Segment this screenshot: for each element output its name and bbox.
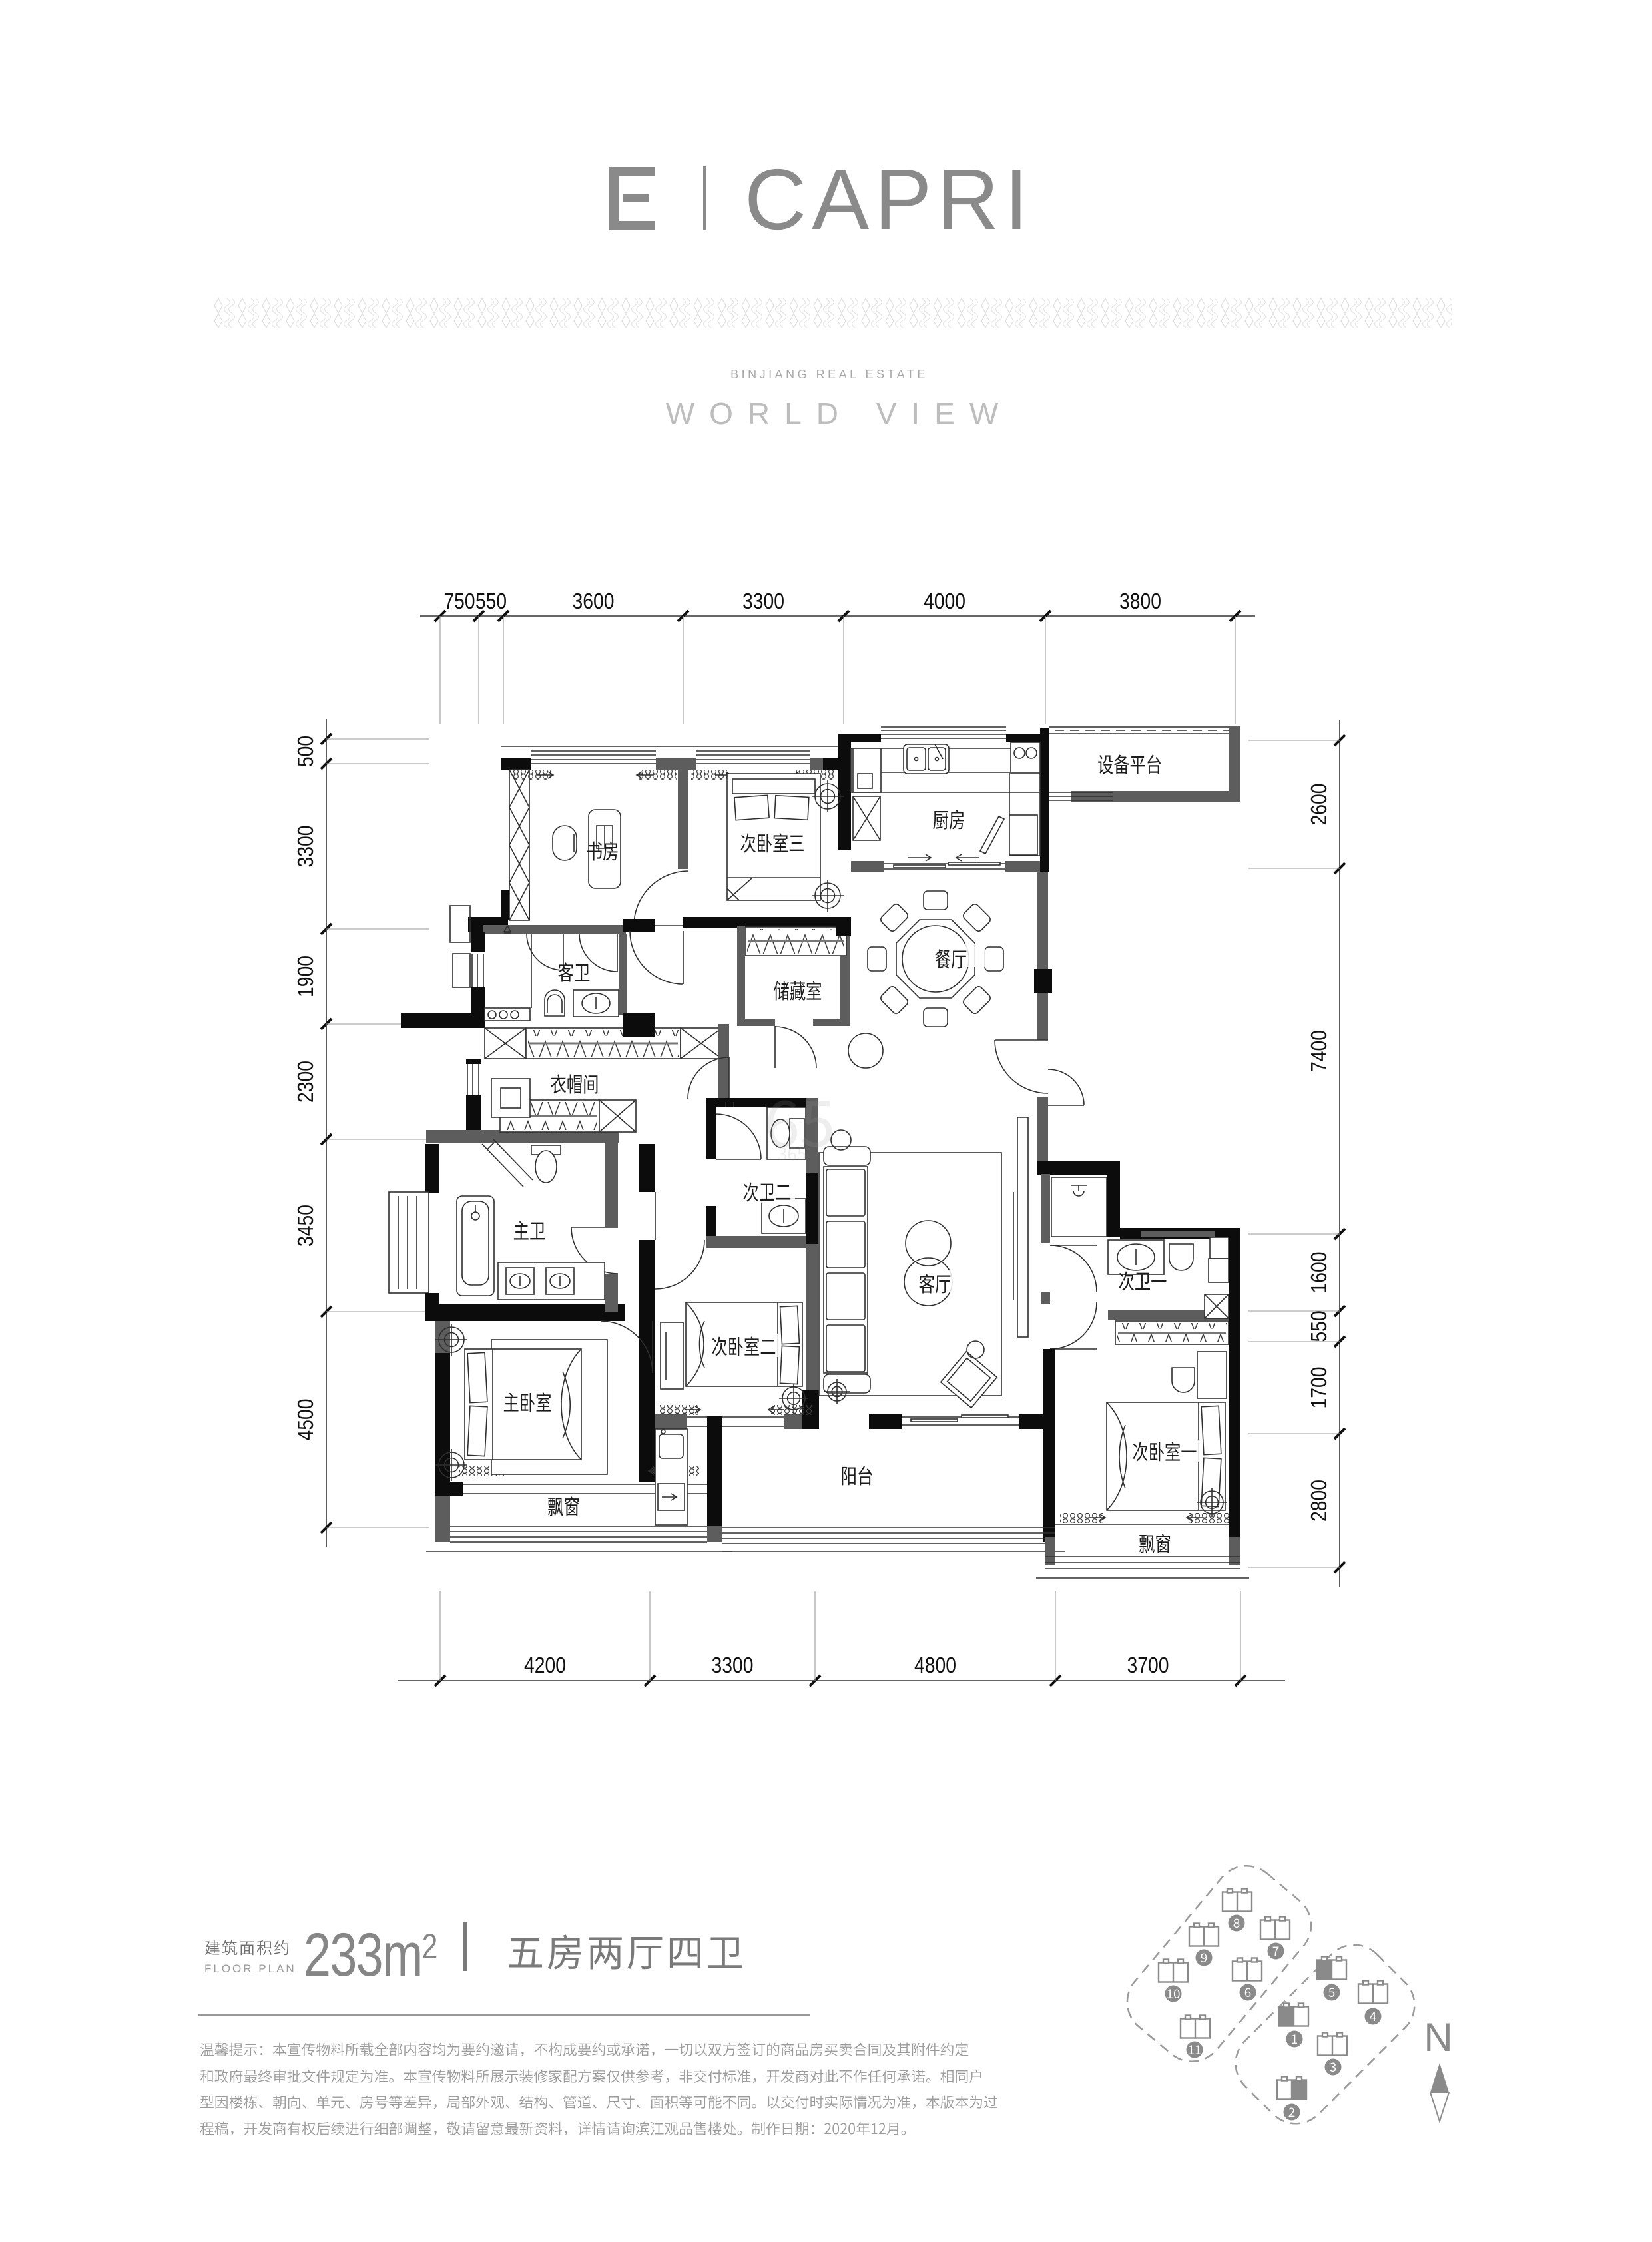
svg-text:主卫: 主卫 — [513, 1215, 546, 1245]
svg-text:次卧室一: 次卧室一 — [1133, 1436, 1197, 1466]
svg-text:储藏室: 储藏室 — [774, 975, 822, 1005]
svg-text:4800: 4800 — [914, 1653, 956, 1677]
svg-text:3300: 3300 — [742, 589, 784, 613]
svg-text:设备平台: 设备平台 — [1097, 748, 1162, 778]
svg-text:阳台: 阳台 — [841, 1460, 874, 1490]
svg-text:2600: 2600 — [1306, 784, 1331, 826]
svg-text:6: 6 — [1244, 1983, 1252, 2001]
svg-text:衣帽间: 衣帽间 — [551, 1068, 599, 1098]
svg-text:次卧室三: 次卧室三 — [740, 827, 805, 857]
svg-text:4500: 4500 — [293, 1399, 318, 1441]
svg-text:4000: 4000 — [924, 589, 965, 613]
svg-text:次卧室二: 次卧室二 — [712, 1330, 776, 1360]
svg-text:550: 550 — [1306, 1311, 1331, 1342]
svg-text:1: 1 — [1291, 2030, 1298, 2048]
svg-text:9: 9 — [1201, 1948, 1208, 1966]
svg-text:2300: 2300 — [293, 1061, 318, 1103]
svg-text:3: 3 — [1330, 2058, 1337, 2076]
svg-text:客厅: 客厅 — [919, 1268, 952, 1298]
svg-text:2: 2 — [1288, 2103, 1296, 2121]
svg-text:主卧室: 主卧室 — [503, 1386, 552, 1416]
svg-text:飘窗: 飘窗 — [547, 1490, 580, 1520]
svg-text:餐厅: 餐厅 — [935, 943, 967, 973]
svg-text:书房: 书房 — [587, 835, 619, 865]
svg-text:5: 5 — [1328, 1983, 1336, 2001]
svg-text:3800: 3800 — [1119, 589, 1161, 613]
svg-text:4200: 4200 — [524, 1653, 566, 1677]
svg-text:8: 8 — [1233, 1914, 1240, 1932]
svg-text:1700: 1700 — [1306, 1367, 1331, 1409]
svg-text:7400: 7400 — [1306, 1030, 1331, 1072]
svg-text:3300: 3300 — [712, 1653, 754, 1677]
svg-text:10: 10 — [1166, 1984, 1180, 2002]
svg-text:厨房: 厨房 — [933, 804, 965, 834]
svg-text:750: 750 — [444, 589, 475, 613]
svg-text:3450: 3450 — [293, 1205, 318, 1247]
svg-text:7: 7 — [1272, 1942, 1280, 1960]
svg-text:550: 550 — [475, 589, 507, 613]
svg-text:飘窗: 飘窗 — [1139, 1528, 1171, 1557]
svg-text:500: 500 — [293, 736, 318, 767]
svg-text:3600: 3600 — [573, 589, 615, 613]
svg-text:11: 11 — [1187, 2040, 1201, 2058]
svg-text:1600: 1600 — [1306, 1252, 1331, 1294]
svg-text:365: 365 — [778, 1141, 806, 1165]
svg-text:2800: 2800 — [1306, 1480, 1331, 1522]
svg-text:次卫二: 次卫二 — [743, 1176, 792, 1206]
svg-text:3700: 3700 — [1127, 1653, 1169, 1677]
svg-text:N: N — [1424, 2005, 1452, 2063]
svg-text:1900: 1900 — [293, 956, 318, 997]
svg-text:客卫: 客卫 — [558, 956, 591, 986]
svg-text:4: 4 — [1370, 2007, 1377, 2025]
svg-text:次卫一: 次卫一 — [1119, 1265, 1167, 1295]
svg-text:3300: 3300 — [293, 826, 318, 868]
